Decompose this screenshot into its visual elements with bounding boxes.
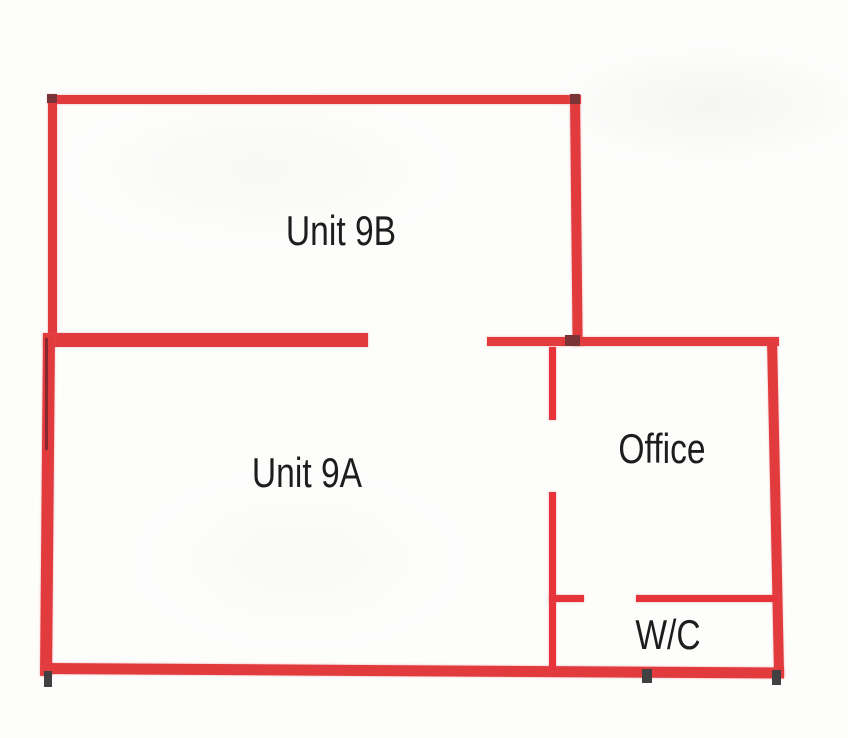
mark-corner-9b-topleft bbox=[47, 94, 57, 103]
tick-bottom-middle bbox=[642, 669, 652, 683]
interior-wall-wc-stub bbox=[549, 595, 584, 602]
unit9b-wall-right bbox=[570, 95, 583, 346]
mark-junction-9b-right bbox=[565, 335, 580, 346]
floor-plan-canvas: Unit 9BUnit 9AOfficeW/C bbox=[0, 0, 848, 738]
interior-wall-wc-right bbox=[636, 595, 778, 602]
room-label-office: Office bbox=[618, 428, 705, 470]
room-label-unit-9a: Unit 9A bbox=[252, 452, 362, 494]
unit9b-wall-top bbox=[48, 95, 581, 104]
unit9b-wall-left bbox=[48, 95, 57, 341]
bottom-wall bbox=[43, 663, 784, 679]
mark-corner-9b-topright bbox=[570, 94, 580, 104]
tick-bottom-left bbox=[44, 671, 52, 687]
tick-bottom-right bbox=[772, 670, 781, 685]
divider-9a-9b-wall bbox=[43, 333, 368, 347]
mark-left-wall-line bbox=[45, 338, 48, 450]
office-wall-right bbox=[767, 338, 784, 677]
room-label-wc: W/C bbox=[635, 614, 700, 656]
room-label-unit-9b: Unit 9B bbox=[286, 210, 396, 252]
interior-wall-office-lower bbox=[549, 492, 556, 670]
office-wall-top bbox=[487, 337, 779, 346]
interior-wall-office-upper bbox=[549, 347, 556, 420]
